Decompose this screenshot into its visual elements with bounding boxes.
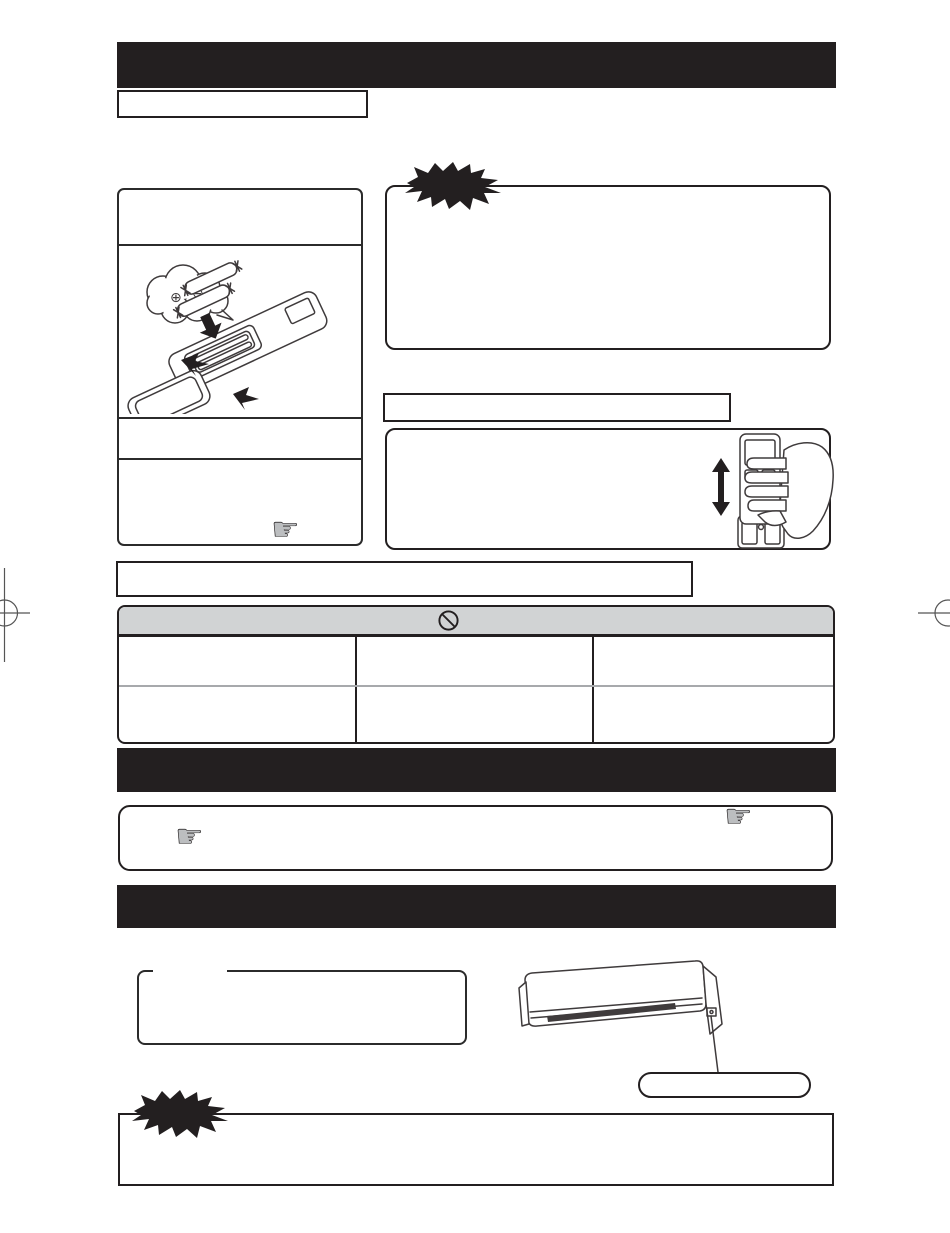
prohibition-icon xyxy=(437,609,460,632)
fieldset-box xyxy=(137,970,467,1045)
note-box xyxy=(116,561,693,597)
panel-divider xyxy=(119,458,361,460)
table-column-divider xyxy=(355,637,357,742)
indoor-unit-illustration xyxy=(505,952,765,1077)
remote-holder-illustration xyxy=(688,430,835,556)
holder-heading-box xyxy=(383,393,731,422)
battery-insertion-illustration: ⊕ ⊖ xyxy=(125,248,357,414)
subtitle-box xyxy=(117,90,368,118)
battery-plus-symbol: ⊕ xyxy=(170,290,182,306)
section-bar-middle xyxy=(117,748,836,792)
caution-starburst-icon xyxy=(403,162,505,212)
table-header xyxy=(119,607,833,637)
fieldset-label-gap xyxy=(153,968,227,974)
section-bar-bottom xyxy=(117,885,836,928)
up-down-arrow-icon xyxy=(712,458,730,516)
indoor-unit-callout-pill xyxy=(638,1072,811,1098)
pointing-hand-icon: ☛ ☞ xyxy=(271,516,307,544)
battery-cover xyxy=(125,368,213,414)
battery-panel: ⊕ ⊖ xyxy=(117,188,363,546)
table-row-divider xyxy=(119,685,833,687)
prohibition-table xyxy=(117,605,835,744)
panel-divider xyxy=(119,244,361,246)
warning-starburst-icon xyxy=(130,1090,232,1140)
manual-page: ⊕ ⊖ xyxy=(0,0,950,1233)
registration-mark-right xyxy=(918,565,950,665)
pointing-hand-icon: ☛ ☞ xyxy=(724,803,760,831)
slide-arrow xyxy=(233,387,259,410)
registration-mark-left xyxy=(0,565,32,665)
table-column-divider xyxy=(592,637,594,742)
panel-divider xyxy=(119,417,361,419)
title-bar xyxy=(117,42,836,88)
pointing-hand-icon: ☛ ☞ xyxy=(175,823,211,851)
